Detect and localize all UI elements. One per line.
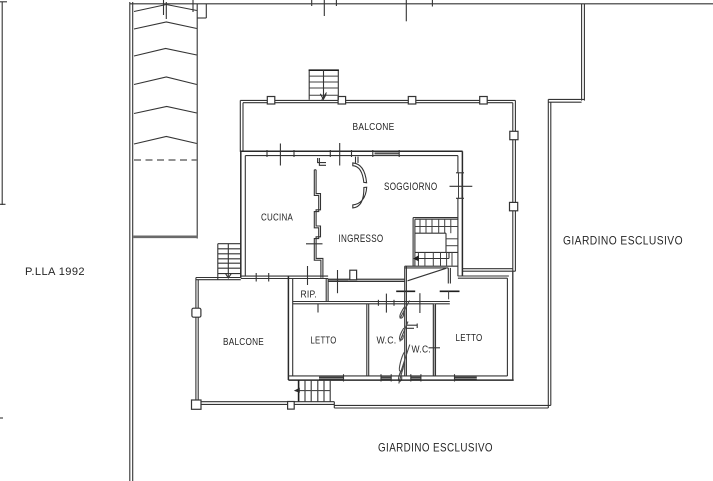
svg-text:LETTO: LETTO (311, 336, 337, 347)
svg-text:GIARDINO ESCLUSIVO: GIARDINO ESCLUSIVO (378, 440, 493, 454)
svg-text:INGRESSO: INGRESSO (339, 233, 384, 245)
svg-text:BALCONE: BALCONE (353, 122, 395, 133)
svg-text:BALCONE: BALCONE (223, 337, 264, 348)
svg-text:SOGGIORNO: SOGGIORNO (384, 181, 438, 193)
svg-text:CUCINA: CUCINA (261, 213, 293, 224)
svg-text:W.C.: W.C. (412, 345, 432, 356)
svg-text:LETTO: LETTO (456, 333, 483, 344)
svg-text:GIARDINO ESCLUSIVO: GIARDINO ESCLUSIVO (563, 234, 683, 248)
svg-text:P.LLA 1992: P.LLA 1992 (25, 266, 85, 278)
svg-text:W.C.: W.C. (377, 336, 397, 347)
svg-text:RIP.: RIP. (301, 290, 318, 301)
